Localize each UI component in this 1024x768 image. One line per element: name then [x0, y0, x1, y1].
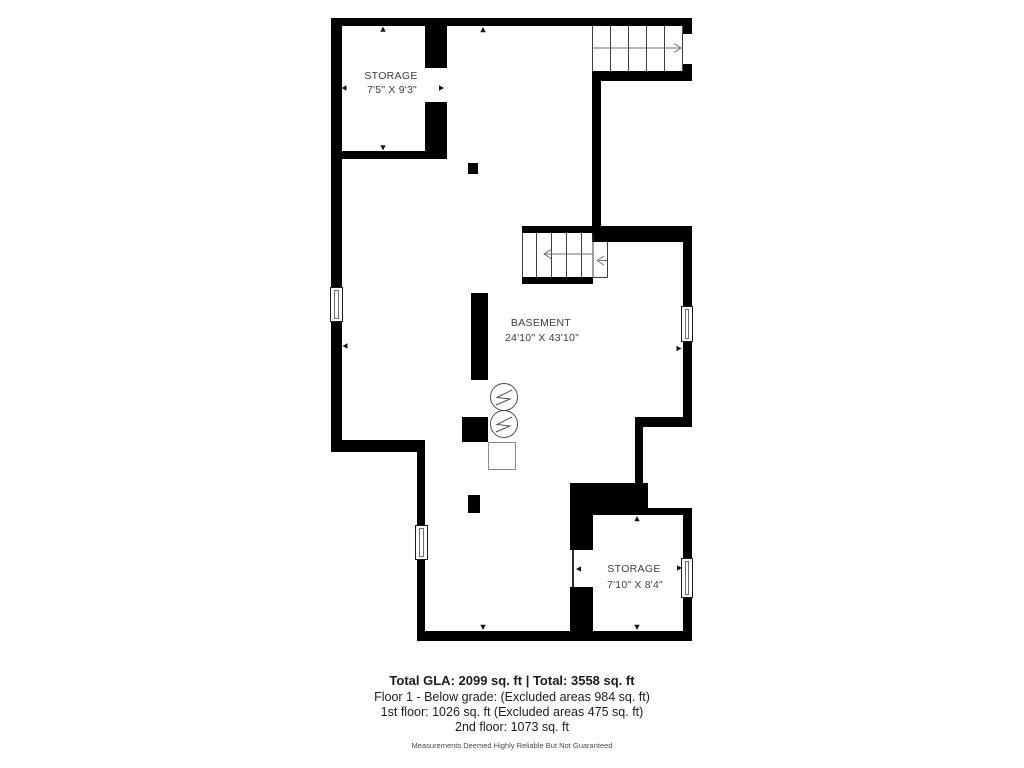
footer-first-floor: 1st floor: 1026 sq. ft (Excluded areas 4…	[0, 705, 1024, 719]
footer-floor1: Floor 1 - Below grade: (Excluded areas 9…	[0, 690, 1024, 704]
footer-total-gla: Total GLA: 2099 sq. ft | Total: 3558 sq.…	[0, 673, 1024, 688]
room-label-basement: BASEMENT	[511, 317, 571, 329]
upper-stair-direction-arrow	[593, 44, 682, 53]
room-label-storage-lower: STORAGE	[607, 563, 660, 575]
footer-second-floor: 2nd floor: 1073 sq. ft	[0, 720, 1024, 734]
room-dims-basement: 24'10" X 43'10"	[505, 332, 579, 344]
water-heater-icon	[491, 384, 518, 411]
room-label-storage-upper: STORAGE	[364, 70, 417, 82]
lower-stair-direction-arrows	[544, 250, 607, 266]
lower-staircase	[523, 233, 609, 278]
furnace-icon	[491, 411, 518, 438]
floorplan-page: STORAGE 7'5" X 9'3" BASEMENT 24'10" X 43…	[0, 0, 1024, 768]
utility-box	[489, 443, 516, 470]
floorplan-symbols	[0, 0, 1024, 768]
room-dims-storage-lower: 7'10" X 8'4"	[607, 579, 663, 591]
footer-disclaimer: Measurements Deemed Highly Reliable But …	[0, 741, 1024, 750]
room-dims-storage-upper: 7'5" X 9'3"	[367, 84, 417, 96]
